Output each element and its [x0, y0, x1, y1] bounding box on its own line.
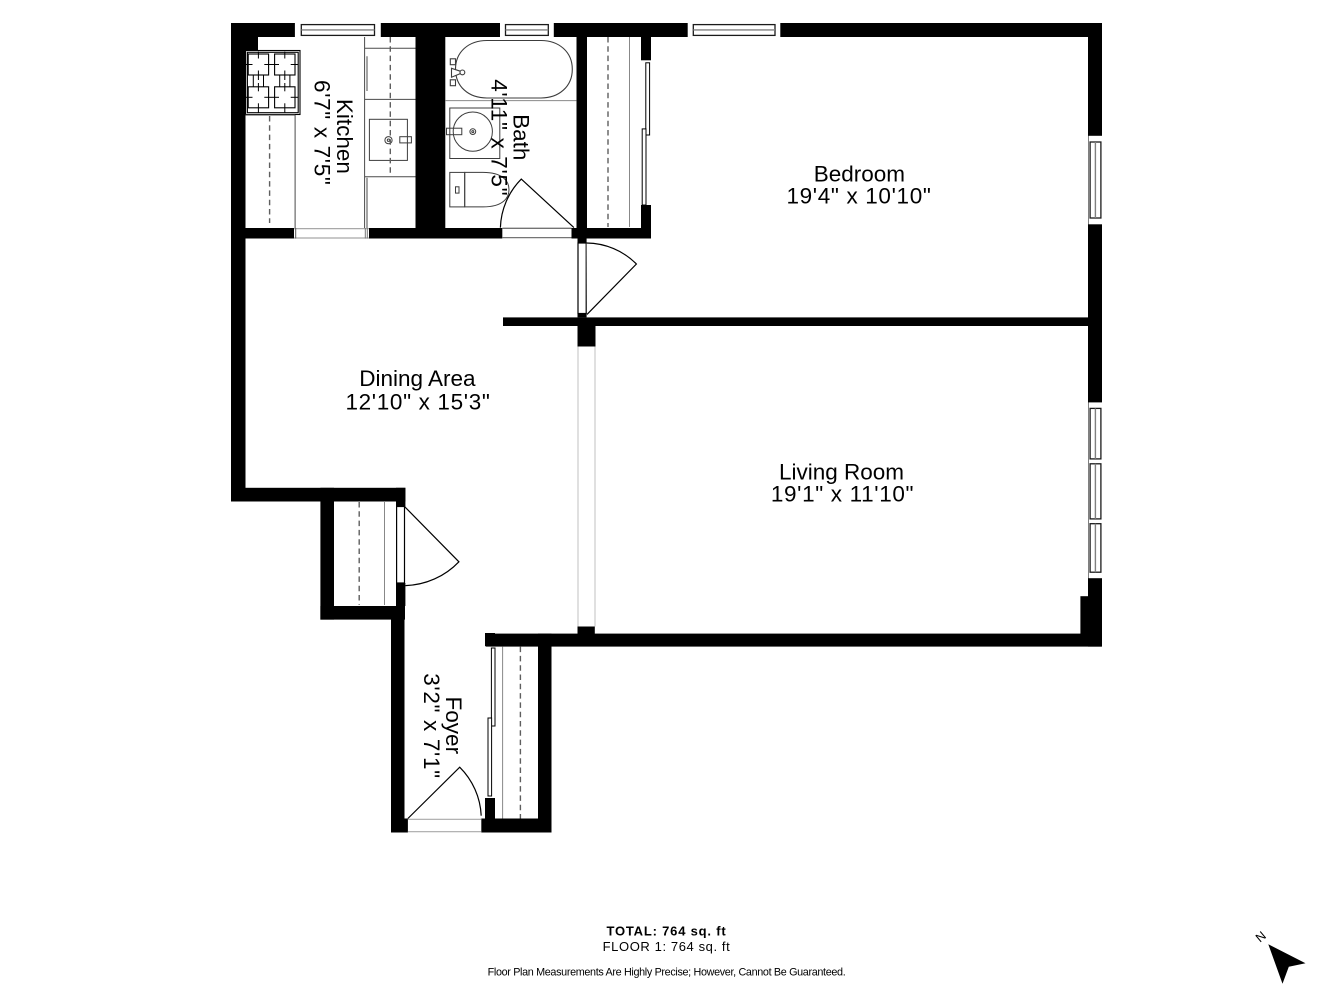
svg-text:Dining Area: Dining Area	[359, 366, 476, 391]
svg-text:12'10" x 15'3": 12'10" x 15'3"	[345, 389, 490, 414]
svg-text:6'7" x 7'5": 6'7" x 7'5"	[310, 80, 335, 186]
svg-text:3'2" x 7'1": 3'2" x 7'1"	[419, 673, 444, 779]
svg-text:FLOOR 1: 764 sq. ft: FLOOR 1: 764 sq. ft	[603, 939, 731, 954]
svg-text:Floor Plan Measurements Are Hi: Floor Plan Measurements Are Highly Preci…	[488, 967, 846, 979]
svg-text:19'1" x 11'10": 19'1" x 11'10"	[771, 482, 914, 507]
svg-text:4'11" x 7'5": 4'11" x 7'5"	[486, 79, 511, 196]
svg-text:TOTAL: 764 sq. ft: TOTAL: 764 sq. ft	[606, 924, 726, 939]
svg-text:19'4" x 10'10": 19'4" x 10'10"	[786, 183, 931, 208]
